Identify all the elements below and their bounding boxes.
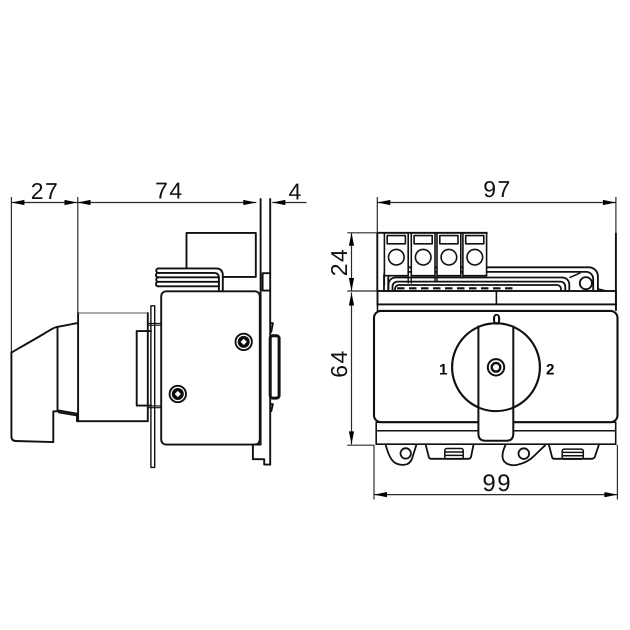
svg-text:0: 0 bbox=[492, 312, 500, 329]
svg-text:1: 1 bbox=[439, 361, 448, 378]
svg-text:24: 24 bbox=[326, 248, 352, 277]
svg-text:4: 4 bbox=[288, 179, 302, 205]
svg-text:97: 97 bbox=[483, 176, 512, 202]
svg-text:99: 99 bbox=[482, 470, 512, 497]
svg-text:74: 74 bbox=[155, 178, 184, 204]
svg-text:27: 27 bbox=[31, 178, 60, 204]
svg-text:64: 64 bbox=[326, 349, 352, 378]
svg-text:2: 2 bbox=[546, 361, 554, 378]
